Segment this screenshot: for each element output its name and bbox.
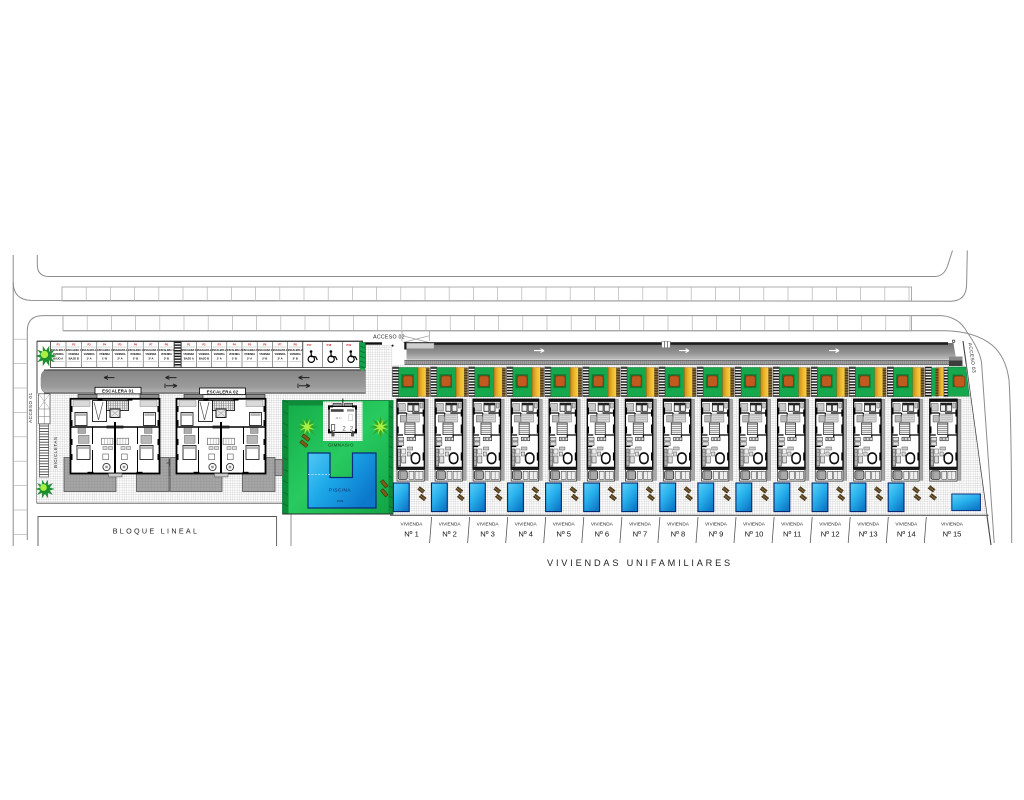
svg-text:P1: P1 [57, 343, 61, 347]
svg-text:VIVIENDA: VIVIENDA [819, 522, 842, 527]
svg-text:P4: P4 [103, 343, 107, 347]
svg-text:ESCALERA 1: ESCALERA 1 [144, 349, 159, 352]
svg-text:Nº 2: Nº 2 [442, 530, 457, 539]
svg-text:VIVIENDA: VIVIENDA [515, 522, 538, 527]
svg-text:P7: P7 [149, 343, 153, 347]
svg-text:P3: P3 [88, 343, 92, 347]
svg-text:Nº 9: Nº 9 [709, 530, 724, 539]
svg-text:VIVIENDA: VIVIENDA [99, 353, 110, 356]
svg-text:P17: P17 [307, 343, 312, 347]
svg-text:VIVIENDA: VIVIENDA [629, 522, 652, 527]
svg-text:VIVIENDA: VIVIENDA [244, 353, 255, 356]
svg-text:PISCINA: PISCINA [329, 488, 351, 493]
svg-text:Nº 8: Nº 8 [671, 530, 686, 539]
svg-text:3º B: 3º B [293, 357, 298, 361]
svg-text:VIVIENDAS UNIFAMILIARES: VIVIENDAS UNIFAMILIARES [547, 558, 733, 568]
svg-text:ESCALERA 1: ESCALERA 1 [159, 349, 174, 352]
svg-text:ESCALERA 2: ESCALERA 2 [212, 349, 227, 352]
svg-text:VIVIENDA: VIVIENDA [130, 353, 141, 356]
svg-text:P3: P3 [218, 343, 222, 347]
svg-text:VIVIENDA: VIVIENDA [259, 353, 270, 356]
svg-text:P1: P1 [187, 343, 191, 347]
svg-text:ESCALERA 2: ESCALERA 2 [288, 349, 303, 352]
svg-text:2º B: 2º B [133, 357, 138, 361]
svg-text:VIVIENDA: VIVIENDA [667, 522, 690, 527]
svg-text:ESCALERA 2: ESCALERA 2 [258, 349, 273, 352]
svg-text:GIMNASIO: GIMNASIO [328, 443, 354, 448]
svg-text:15.00: 15.00 [337, 499, 344, 503]
svg-text:Nº 14: Nº 14 [897, 530, 916, 539]
svg-text:ESCALERA 1: ESCALERA 1 [97, 349, 112, 352]
svg-text:2º A: 2º A [247, 357, 252, 361]
svg-text:Nº 12: Nº 12 [821, 530, 840, 539]
svg-text:Nº 1: Nº 1 [404, 530, 419, 539]
svg-text:Nº 7: Nº 7 [633, 530, 648, 539]
svg-text:2º A: 2º A [117, 357, 122, 361]
svg-text:3º B: 3º B [164, 357, 169, 361]
svg-text:Nº 5: Nº 5 [556, 530, 571, 539]
svg-text:P8: P8 [165, 343, 169, 347]
svg-text:VIVIENDA: VIVIENDA [161, 353, 172, 356]
svg-text:VIVIENDA: VIVIENDA [275, 353, 286, 356]
svg-text:P5: P5 [118, 343, 122, 347]
svg-text:Nº 10: Nº 10 [745, 530, 764, 539]
svg-text:VIVIENDA: VIVIENDA [941, 522, 964, 527]
svg-text:ESCALERA 01: ESCALERA 01 [102, 389, 134, 394]
svg-text:Nº 4: Nº 4 [518, 530, 533, 539]
svg-text:VIVIENDA: VIVIENDA [857, 522, 880, 527]
svg-text:BAJO B: BAJO B [69, 357, 79, 361]
svg-text:VIVIENDA: VIVIENDA [895, 522, 918, 527]
svg-text:ESCALERA 1: ESCALERA 1 [128, 349, 143, 352]
svg-text:VIVIENDA: VIVIENDA [214, 353, 225, 356]
svg-text:VIVIENDA: VIVIENDA [401, 522, 424, 527]
svg-text:P18: P18 [327, 343, 332, 347]
svg-text:Nº 15: Nº 15 [943, 530, 962, 539]
svg-text:P8: P8 [294, 343, 298, 347]
svg-text:BAJO A: BAJO A [53, 357, 63, 361]
svg-text:VIVIENDA: VIVIENDA [439, 522, 462, 527]
svg-text:BAJO B: BAJO B [199, 357, 209, 361]
svg-text:ESCALERA 2: ESCALERA 2 [227, 349, 242, 352]
svg-text:BLOQUE LINEAL: BLOQUE LINEAL [113, 527, 200, 536]
svg-text:ESCALERA 2: ESCALERA 2 [242, 349, 257, 352]
svg-text:ACCESO 03: ACCESO 03 [967, 342, 977, 373]
svg-text:VIVIENDA: VIVIENDA [705, 522, 728, 527]
svg-text:ESCALERA 1: ESCALERA 1 [113, 349, 128, 352]
svg-text:1º A: 1º A [217, 357, 222, 361]
svg-text:ACCESO 01: ACCESO 01 [28, 392, 34, 423]
svg-text:1º B: 1º B [102, 357, 107, 361]
svg-text:BICICLETAS: BICICLETAS [53, 437, 58, 468]
svg-text:P19: P19 [347, 343, 352, 347]
svg-text:VIVIENDA: VIVIENDA [199, 353, 210, 356]
svg-text:VIVIENDA: VIVIENDA [591, 522, 614, 527]
svg-text:3º A: 3º A [148, 357, 153, 361]
svg-text:P2: P2 [202, 343, 206, 347]
svg-text:VIVIENDA: VIVIENDA [84, 353, 95, 356]
svg-text:Nº 3: Nº 3 [480, 530, 495, 539]
svg-text:VIVIENDA: VIVIENDA [477, 522, 500, 527]
svg-text:1º B: 1º B [232, 357, 237, 361]
svg-text:VIVIENDA: VIVIENDA [115, 353, 126, 356]
svg-text:P5: P5 [248, 343, 252, 347]
svg-text:ESCALERA 1: ESCALERA 1 [66, 349, 81, 352]
svg-text:1º A: 1º A [87, 357, 92, 361]
svg-text:VIVIENDA: VIVIENDA [553, 522, 576, 527]
svg-text:ESCALERA 2: ESCALERA 2 [273, 349, 288, 352]
svg-text:BAJO A: BAJO A [184, 357, 194, 361]
svg-text:ACCESO 02: ACCESO 02 [373, 334, 405, 340]
svg-text:ESCALERA 2: ESCALERA 2 [182, 349, 197, 352]
svg-text:VIVIENDA: VIVIENDA [145, 353, 156, 356]
svg-text:38 m²: 38 m² [335, 417, 341, 420]
svg-text:VIVIENDA: VIVIENDA [229, 353, 240, 356]
svg-text:P4: P4 [233, 343, 237, 347]
svg-text:Nº 11: Nº 11 [783, 530, 801, 539]
svg-text:VIVIENDA: VIVIENDA [68, 353, 79, 356]
svg-text:ESCALERA 02: ESCALERA 02 [207, 389, 239, 394]
svg-text:ESCALERA 1: ESCALERA 1 [82, 349, 97, 352]
svg-text:P6: P6 [263, 343, 267, 347]
svg-text:VIVIENDA: VIVIENDA [743, 522, 766, 527]
svg-text:Nº 13: Nº 13 [859, 530, 878, 539]
svg-text:ESCALERA 2: ESCALERA 2 [197, 349, 212, 352]
svg-text:3º A: 3º A [277, 357, 282, 361]
svg-text:VIVIENDA: VIVIENDA [290, 353, 301, 356]
svg-text:P6: P6 [134, 343, 138, 347]
svg-text:Nº 6: Nº 6 [595, 530, 610, 539]
svg-text:VIVIENDA: VIVIENDA [781, 522, 804, 527]
svg-text:P7: P7 [278, 343, 282, 347]
svg-text:P2: P2 [72, 343, 76, 347]
svg-text:VIVIENDA: VIVIENDA [183, 353, 194, 356]
svg-text:2º B: 2º B [262, 357, 267, 361]
